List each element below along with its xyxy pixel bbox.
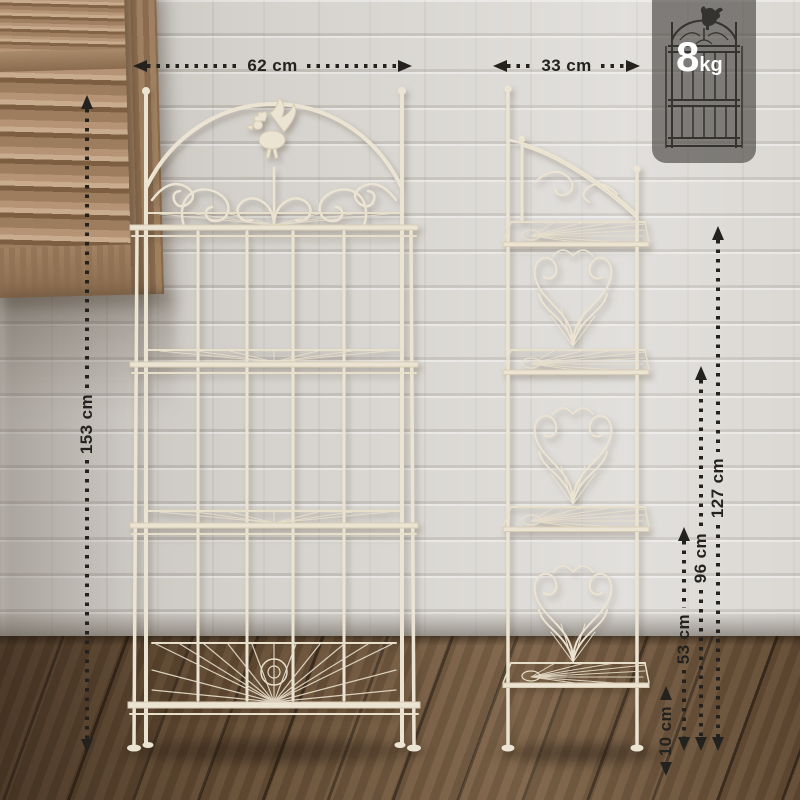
shelf <box>130 511 418 534</box>
dimension-side-depth: 33 cm <box>493 56 640 76</box>
arrow-left-icon <box>133 60 147 72</box>
dotted-line <box>716 525 719 737</box>
dimension-shelf-127: 127 cm <box>709 226 727 751</box>
shelf <box>503 507 649 532</box>
dotted-line <box>147 64 238 67</box>
dimension-label: 10 cm <box>656 700 676 762</box>
dotted-line <box>85 460 88 739</box>
dimension-front-width: 62 cm <box>133 56 412 76</box>
arrow-up-icon <box>660 686 672 700</box>
dotted-line <box>307 64 398 67</box>
dimension-label: 127 cm <box>708 452 728 524</box>
dimension-total-height: 153 cm <box>78 95 96 753</box>
product-dimension-photo: 8kg 62 cm 33 cm 153 cm 127 cm 96 cm <box>0 0 800 800</box>
shelf <box>130 350 418 373</box>
dimension-shelf-53: 53 cm <box>675 527 693 751</box>
weight-label: 8kg <box>676 36 723 78</box>
dimension-label: 96 cm <box>691 527 711 589</box>
bakers-rack-side-view <box>495 80 661 772</box>
dotted-line <box>682 670 685 737</box>
dotted-line <box>716 240 719 452</box>
dotted-line <box>699 590 702 737</box>
shelf <box>503 350 649 375</box>
weight-badge: 8kg <box>652 0 756 163</box>
weight-unit: kg <box>699 54 722 76</box>
arrow-up-icon <box>81 95 93 109</box>
arrow-up-icon <box>712 226 724 240</box>
shutter-rail-bottom <box>0 245 132 299</box>
vertical-bars <box>198 232 344 700</box>
dimension-label: 33 cm <box>541 56 591 76</box>
dimension-label: 62 cm <box>247 56 297 76</box>
dimension-label: 153 cm <box>77 388 97 460</box>
shutter-louvers-main <box>0 69 131 249</box>
shelf <box>130 213 418 236</box>
weight-value: 8 <box>676 33 699 80</box>
dotted-line <box>699 380 702 527</box>
dotted-line <box>682 541 685 608</box>
shutter-louvers-top <box>0 0 126 52</box>
dotted-line <box>507 64 532 67</box>
folded-rack-icon <box>652 0 756 163</box>
arrow-left-icon <box>493 60 507 72</box>
bakers-rack-front-view <box>118 80 430 772</box>
shelf <box>503 222 649 247</box>
arrow-down-icon <box>660 762 672 776</box>
dotted-line <box>85 109 88 388</box>
arrow-up-icon <box>678 527 690 541</box>
dimension-label: 53 cm <box>674 608 694 670</box>
rooster-silhouette-icon <box>701 6 723 30</box>
arrow-down-icon <box>81 739 93 753</box>
arrow-up-icon <box>695 366 707 380</box>
dotted-line <box>601 64 626 67</box>
arrow-right-icon <box>626 60 640 72</box>
arch-side-profile <box>509 140 636 214</box>
dimension-shelf-96: 96 cm <box>692 366 710 751</box>
dimension-shelf-10: 10 cm <box>657 686 675 751</box>
arrow-right-icon <box>398 60 412 72</box>
arrow-down-icon <box>712 737 724 751</box>
arrow-down-icon <box>695 737 707 751</box>
arrow-down-icon <box>678 737 690 751</box>
bottom-shelf-sunburst <box>128 643 420 714</box>
shelf <box>503 663 649 688</box>
